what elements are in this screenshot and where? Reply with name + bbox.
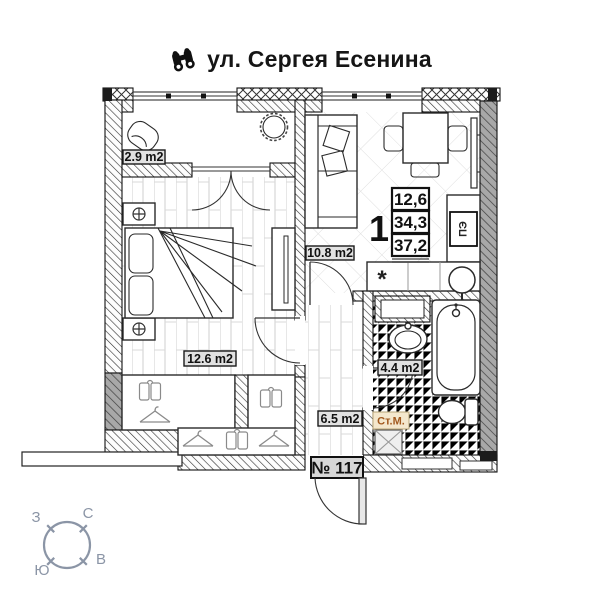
street-title-bar: ул. Сергея Есенина bbox=[0, 46, 600, 73]
door-opening bbox=[363, 366, 373, 410]
wall-right bbox=[480, 101, 497, 461]
wall bbox=[270, 163, 295, 177]
entrance: № 117 bbox=[311, 455, 366, 524]
wall bbox=[122, 163, 192, 177]
compass-east: В bbox=[96, 551, 106, 568]
closet bbox=[122, 375, 235, 430]
wall bbox=[295, 377, 305, 455]
axis-mark bbox=[488, 88, 497, 101]
sofa bbox=[305, 115, 357, 228]
entrance-door-arc bbox=[315, 478, 363, 524]
washing-machine-spot bbox=[375, 430, 402, 454]
summary-value: 12,6 bbox=[394, 190, 427, 209]
stove-label: ПЭ bbox=[458, 221, 470, 237]
apartment-number: № 117 bbox=[311, 459, 362, 478]
wall bbox=[363, 291, 373, 368]
street-title: ул. Сергея Есенина bbox=[207, 46, 432, 73]
balcony-area-label: 2.9 m2 bbox=[125, 150, 164, 164]
duct bbox=[460, 461, 492, 470]
tv-dresser bbox=[272, 228, 295, 310]
wall bbox=[105, 430, 180, 452]
tv bbox=[284, 236, 288, 303]
axis-mark bbox=[480, 451, 497, 461]
compass-south: Ю bbox=[34, 562, 49, 579]
washing-machine-label: Ст.М. bbox=[377, 416, 405, 428]
wall-ledge bbox=[22, 452, 182, 466]
wall bbox=[178, 455, 305, 470]
wall bbox=[295, 365, 305, 377]
floor-plan-page: ул. Сергея Есенина bbox=[0, 0, 600, 600]
wall-left bbox=[105, 100, 122, 373]
door-opening bbox=[295, 316, 305, 365]
bathroom-area-label: 4.4 m2 bbox=[381, 361, 420, 375]
hallway-area-label: 6.5 m2 bbox=[321, 412, 360, 426]
wall-left-column bbox=[105, 373, 122, 430]
wall bbox=[422, 100, 480, 112]
compass: С З В Ю bbox=[31, 505, 106, 579]
toilet bbox=[439, 399, 479, 425]
duct bbox=[402, 458, 452, 469]
axis-mark bbox=[103, 88, 112, 101]
entrance-door-leaf bbox=[359, 478, 366, 524]
hallway: 6.5 m2 bbox=[318, 411, 362, 426]
wall-partition bbox=[295, 100, 305, 320]
wall-pier bbox=[237, 88, 322, 101]
summary-value: 37,2 bbox=[394, 236, 427, 255]
closet-divider bbox=[235, 375, 248, 430]
summary-value: 34,3 bbox=[394, 213, 427, 232]
window-balcony bbox=[133, 92, 237, 100]
hallway-floor bbox=[305, 305, 363, 455]
kitchen-area-label: 10.8 m2 bbox=[307, 246, 353, 260]
bedroom-area-label: 12.6 m2 bbox=[187, 352, 233, 366]
binoculars-icon bbox=[168, 47, 198, 73]
kitchen-sink bbox=[449, 267, 475, 293]
compass-ticks bbox=[47, 525, 87, 565]
floor-plan-drawing: 2.9 m2 12.6 m2 bbox=[0, 0, 600, 600]
compass-north: С bbox=[83, 505, 94, 522]
rooms-count: 1 bbox=[369, 208, 389, 249]
sink-symbol: * bbox=[377, 266, 387, 293]
dining-table bbox=[403, 113, 448, 163]
compass-west: З bbox=[31, 509, 40, 526]
window-kitchen bbox=[322, 92, 422, 100]
wall bbox=[237, 100, 322, 112]
shaft-inner bbox=[381, 300, 424, 318]
wall bbox=[363, 408, 373, 458]
bathtub bbox=[432, 300, 480, 395]
